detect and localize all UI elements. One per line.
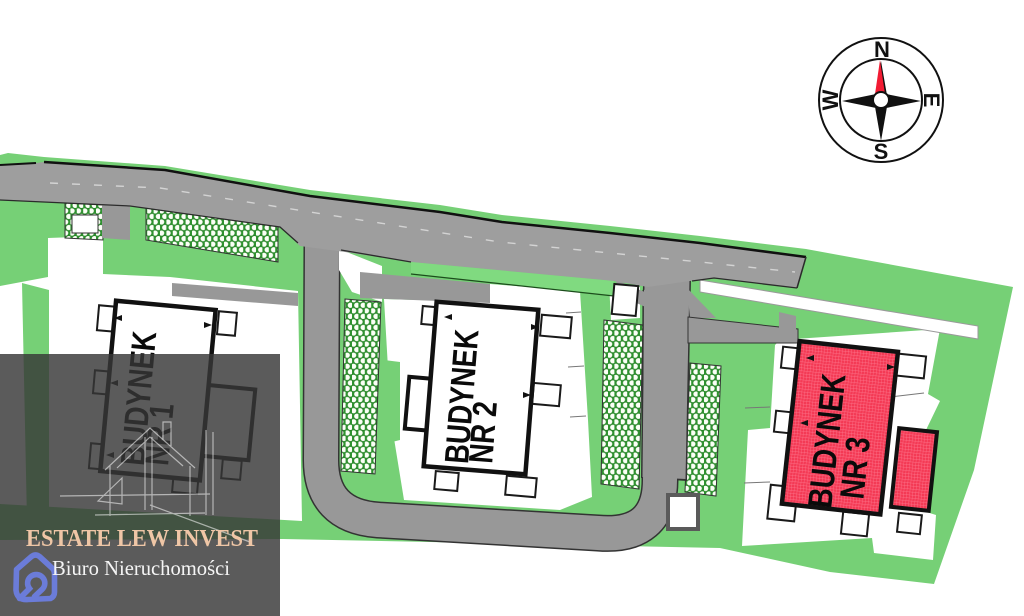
svg-text:Biuro Nieruchomości: Biuro Nieruchomości [52, 556, 230, 580]
svg-text:NR 2: NR 2 [461, 400, 504, 465]
svg-text:N: N [874, 37, 890, 62]
svg-text:E: E [919, 93, 944, 108]
svg-text:NR 3: NR 3 [833, 435, 878, 501]
svg-text:W: W [818, 89, 843, 110]
svg-text:S: S [874, 139, 889, 164]
svg-text:ESTATE LEW INVEST: ESTATE LEW INVEST [26, 526, 258, 552]
